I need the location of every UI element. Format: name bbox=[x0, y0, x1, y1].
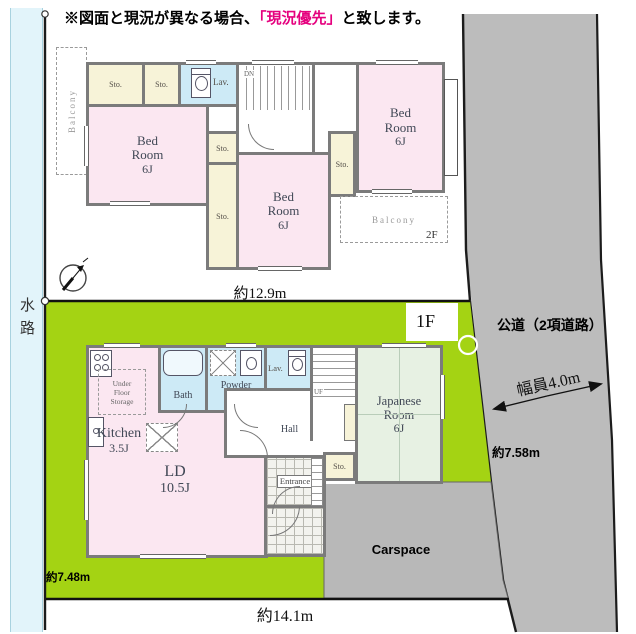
lavatory-2f-label: Lav. bbox=[213, 77, 229, 87]
ufs-label: Under bbox=[113, 379, 132, 388]
road-label: 公道（2項道路） bbox=[497, 315, 603, 335]
window bbox=[186, 60, 216, 65]
window bbox=[104, 343, 140, 348]
dimension-bottom: 約14.1m bbox=[230, 602, 340, 626]
bathtub-icon bbox=[163, 350, 203, 376]
room-label: Room bbox=[385, 121, 417, 136]
window bbox=[110, 201, 150, 206]
room-size: 6J bbox=[395, 135, 406, 148]
under-floor-storage: Under Floor Storage bbox=[98, 369, 146, 415]
storage-label: Sto. bbox=[336, 160, 349, 169]
window bbox=[226, 343, 256, 348]
bedroom-2f-middle: Bed Room 6J bbox=[236, 152, 331, 270]
storage-2f-3: Sto. bbox=[206, 131, 239, 165]
storage-label: Sto. bbox=[216, 212, 229, 221]
lavatory-1f-label: Lav. bbox=[268, 363, 283, 373]
boundary-marker-mid bbox=[41, 297, 48, 304]
storage-1f: Sto. bbox=[323, 452, 356, 481]
storage-2f-5: Sto. bbox=[328, 131, 356, 197]
storage-2f-1: Sto. bbox=[86, 62, 145, 107]
window bbox=[440, 375, 445, 419]
entrance-step bbox=[311, 458, 323, 506]
storage-label: Sto. bbox=[155, 80, 168, 89]
washing-machine-icon bbox=[210, 350, 236, 376]
japanese-room: Japanese Room 6J bbox=[355, 345, 443, 484]
dimension-right: 約7.58m bbox=[492, 442, 540, 461]
room-label: Bed bbox=[390, 106, 411, 121]
room-label: Bed bbox=[137, 134, 158, 149]
storage-label: Sto. bbox=[109, 80, 122, 89]
window bbox=[372, 189, 412, 194]
balcony-left-label: Balcony bbox=[67, 89, 77, 133]
stairs-1f-label: UF bbox=[313, 388, 324, 396]
bay-window bbox=[444, 79, 458, 176]
carspace-label: Carspace bbox=[358, 542, 444, 557]
dimension-top: 約12.9m bbox=[215, 282, 305, 303]
balcony-2f-right: Balcony bbox=[340, 196, 448, 243]
toilet-icon bbox=[288, 350, 306, 376]
window bbox=[376, 60, 418, 65]
carspace-area bbox=[324, 482, 508, 598]
compass-icon bbox=[60, 258, 88, 291]
dimension-left: 約7.48m bbox=[46, 569, 90, 585]
bedroom-2f-left: Bed Room 6J bbox=[86, 104, 209, 206]
bedroom-2f-right: Bed Room 6J bbox=[356, 62, 445, 193]
boundary-marker-top bbox=[42, 11, 48, 17]
kitchen-counter-icon bbox=[146, 423, 178, 452]
floor-plan-page: { "disclaimer": { "pre": "※図面と現況が異なる場合、"… bbox=[0, 0, 636, 634]
powder-sink-icon bbox=[240, 350, 262, 376]
ufs-label: Storage bbox=[111, 397, 134, 406]
hall: Hall bbox=[224, 388, 313, 458]
storage-2f-4: Sto. bbox=[206, 162, 239, 270]
storage-label: Sto. bbox=[333, 462, 346, 471]
window bbox=[84, 460, 89, 520]
window bbox=[140, 554, 206, 559]
ufs-label: Floor bbox=[114, 388, 130, 397]
window bbox=[252, 60, 294, 65]
storage-label: Sto. bbox=[216, 144, 229, 153]
room-label: Room bbox=[268, 204, 300, 219]
hall-label: Hall bbox=[281, 424, 298, 435]
window bbox=[84, 126, 89, 166]
balcony-right-label: Balcony bbox=[372, 215, 416, 225]
floor1-label-patch bbox=[406, 303, 458, 341]
room-size: 6J bbox=[142, 163, 153, 176]
room-size: 6J bbox=[278, 219, 289, 232]
kitchen-sink-icon bbox=[88, 417, 104, 447]
window bbox=[258, 266, 302, 271]
storage-2f-2: Sto. bbox=[142, 62, 181, 107]
room-label: Bed bbox=[273, 190, 294, 205]
toilet-icon bbox=[191, 68, 211, 98]
room-label: Room bbox=[132, 148, 164, 163]
balcony-2f-left: Balcony bbox=[56, 47, 87, 175]
window bbox=[382, 343, 426, 348]
stairs-2f-label: DN bbox=[243, 70, 255, 78]
